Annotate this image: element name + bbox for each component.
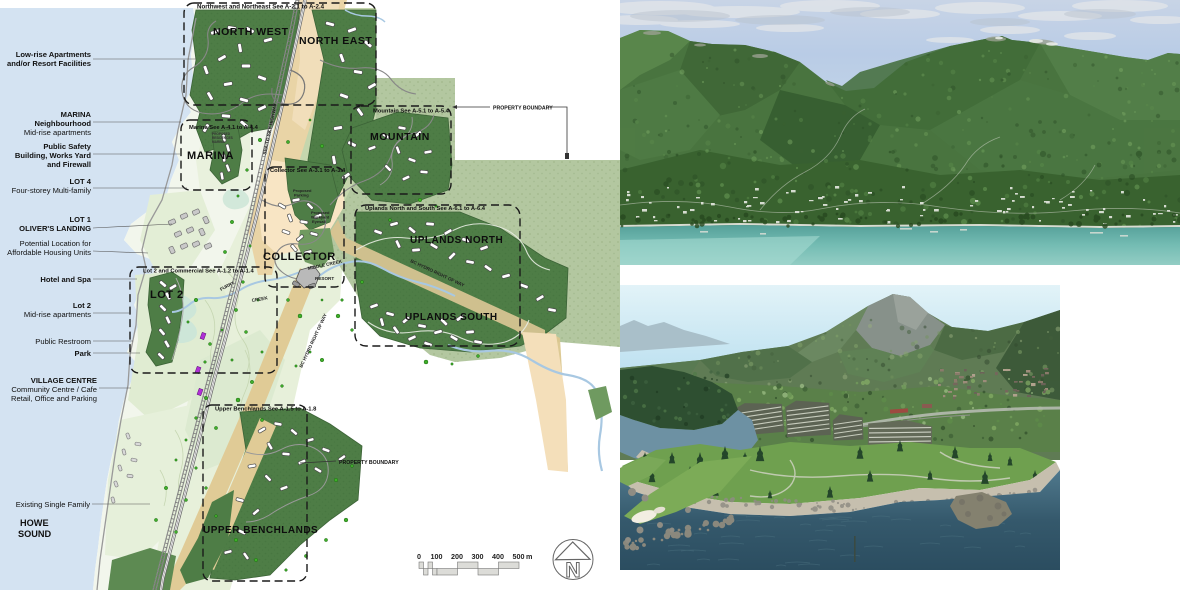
svg-text:Mid-rise apartments: Mid-rise apartments	[24, 128, 91, 137]
svg-text:Four-storey Multi-family: Four-storey Multi-family	[12, 186, 92, 195]
svg-text:OLIVER'S LANDING: OLIVER'S LANDING	[19, 224, 91, 233]
svg-text:LOT 1: LOT 1	[69, 215, 91, 224]
svg-text:Hotel and Spa: Hotel and Spa	[40, 275, 91, 284]
svg-text:RESORT: RESORT	[315, 276, 334, 281]
svg-text:Mountain See A-5.1 to A-5.4: Mountain See A-5.1 to A-5.4	[373, 109, 450, 115]
svg-text:LOT 4: LOT 4	[69, 177, 91, 186]
svg-text:Public Restroom: Public Restroom	[35, 337, 91, 346]
svg-text:Potential Location for: Potential Location for	[20, 239, 92, 248]
svg-text:Northwest and Northeast See A: Northwest and Northeast See A-2.1 to A-2…	[197, 4, 325, 11]
svg-text:MARINA: MARINA	[212, 140, 225, 144]
svg-text:Low-rise Apartments: Low-rise Apartments	[16, 50, 91, 59]
svg-text:Neighbourhood: Neighbourhood	[34, 119, 91, 128]
svg-text:Eyesall: Eyesall	[312, 219, 326, 224]
svg-text:VILLAGE CENTRE: VILLAGE CENTRE	[31, 376, 97, 385]
svg-text:Parking: Parking	[294, 193, 309, 198]
svg-text:COLLECTOR: COLLECTOR	[263, 251, 336, 263]
svg-text:Lot 2: Lot 2	[73, 301, 91, 310]
svg-text:UPLANDS SOUTH: UPLANDS SOUTH	[405, 312, 498, 323]
svg-text:PROPERTY BOUNDARY: PROPERTY BOUNDARY	[339, 460, 399, 466]
svg-text:300: 300	[472, 552, 484, 561]
svg-text:N: N	[565, 559, 580, 582]
svg-text:NORTH WEST: NORTH WEST	[213, 26, 289, 38]
svg-text:MARINA: MARINA	[187, 150, 234, 162]
svg-text:Affordable Housing Units: Affordable Housing Units	[7, 248, 91, 257]
svg-text:Public Safety: Public Safety	[43, 142, 91, 151]
svg-text:200: 200	[451, 552, 463, 561]
svg-text:MOUNTAIN: MOUNTAIN	[370, 131, 430, 143]
svg-text:PROPERTY BOUNDARY: PROPERTY BOUNDARY	[493, 106, 553, 112]
svg-text:UPLANDS NORTH: UPLANDS NORTH	[410, 235, 503, 246]
svg-text:Marina See A-4.1 to A-4.4: Marina See A-4.1 to A-4.4	[189, 125, 259, 131]
svg-text:Building, Works Yard: Building, Works Yard	[15, 151, 91, 160]
svg-text:Lot 2 and Commercial See A-1.: Lot 2 and Commercial See A-1.2 to A-1.4	[143, 269, 254, 275]
svg-text:and Firewall: and Firewall	[47, 160, 91, 169]
svg-text:Collector See A-3.1 to A-3.4: Collector See A-3.1 to A-3.4	[270, 168, 346, 174]
svg-text:MARINA: MARINA	[61, 110, 92, 119]
svg-text:0: 0	[417, 552, 421, 561]
svg-text:Park: Park	[75, 349, 92, 358]
svg-text:m: m	[526, 552, 532, 561]
svg-text:Mid-rise apartments: Mid-rise apartments	[24, 310, 91, 319]
svg-text:Existing Single Family: Existing Single Family	[16, 500, 90, 509]
svg-text:Upper Benchlands See A-1.5 to: Upper Benchlands See A-1.5 to A-1.8	[215, 407, 317, 413]
svg-text:SOUND: SOUND	[18, 529, 52, 539]
svg-text:LOT 2: LOT 2	[150, 289, 184, 301]
svg-text:100: 100	[431, 552, 443, 561]
svg-text:400: 400	[492, 552, 504, 561]
svg-text:UPPER BENCHLANDS: UPPER BENCHLANDS	[203, 525, 318, 536]
svg-text:500: 500	[513, 552, 525, 561]
svg-text:Retail, Office and Parking: Retail, Office and Parking	[11, 394, 97, 403]
svg-text:NORTH EAST: NORTH EAST	[299, 35, 372, 47]
svg-text:HOWE: HOWE	[20, 518, 49, 528]
svg-text:Uplands North and South See A-: Uplands North and South See A-6.1 to A-6…	[365, 206, 486, 212]
svg-text:Community Centre / Cafe: Community Centre / Cafe	[11, 385, 97, 394]
svg-text:and/or Resort Facilities: and/or Resort Facilities	[7, 59, 91, 68]
